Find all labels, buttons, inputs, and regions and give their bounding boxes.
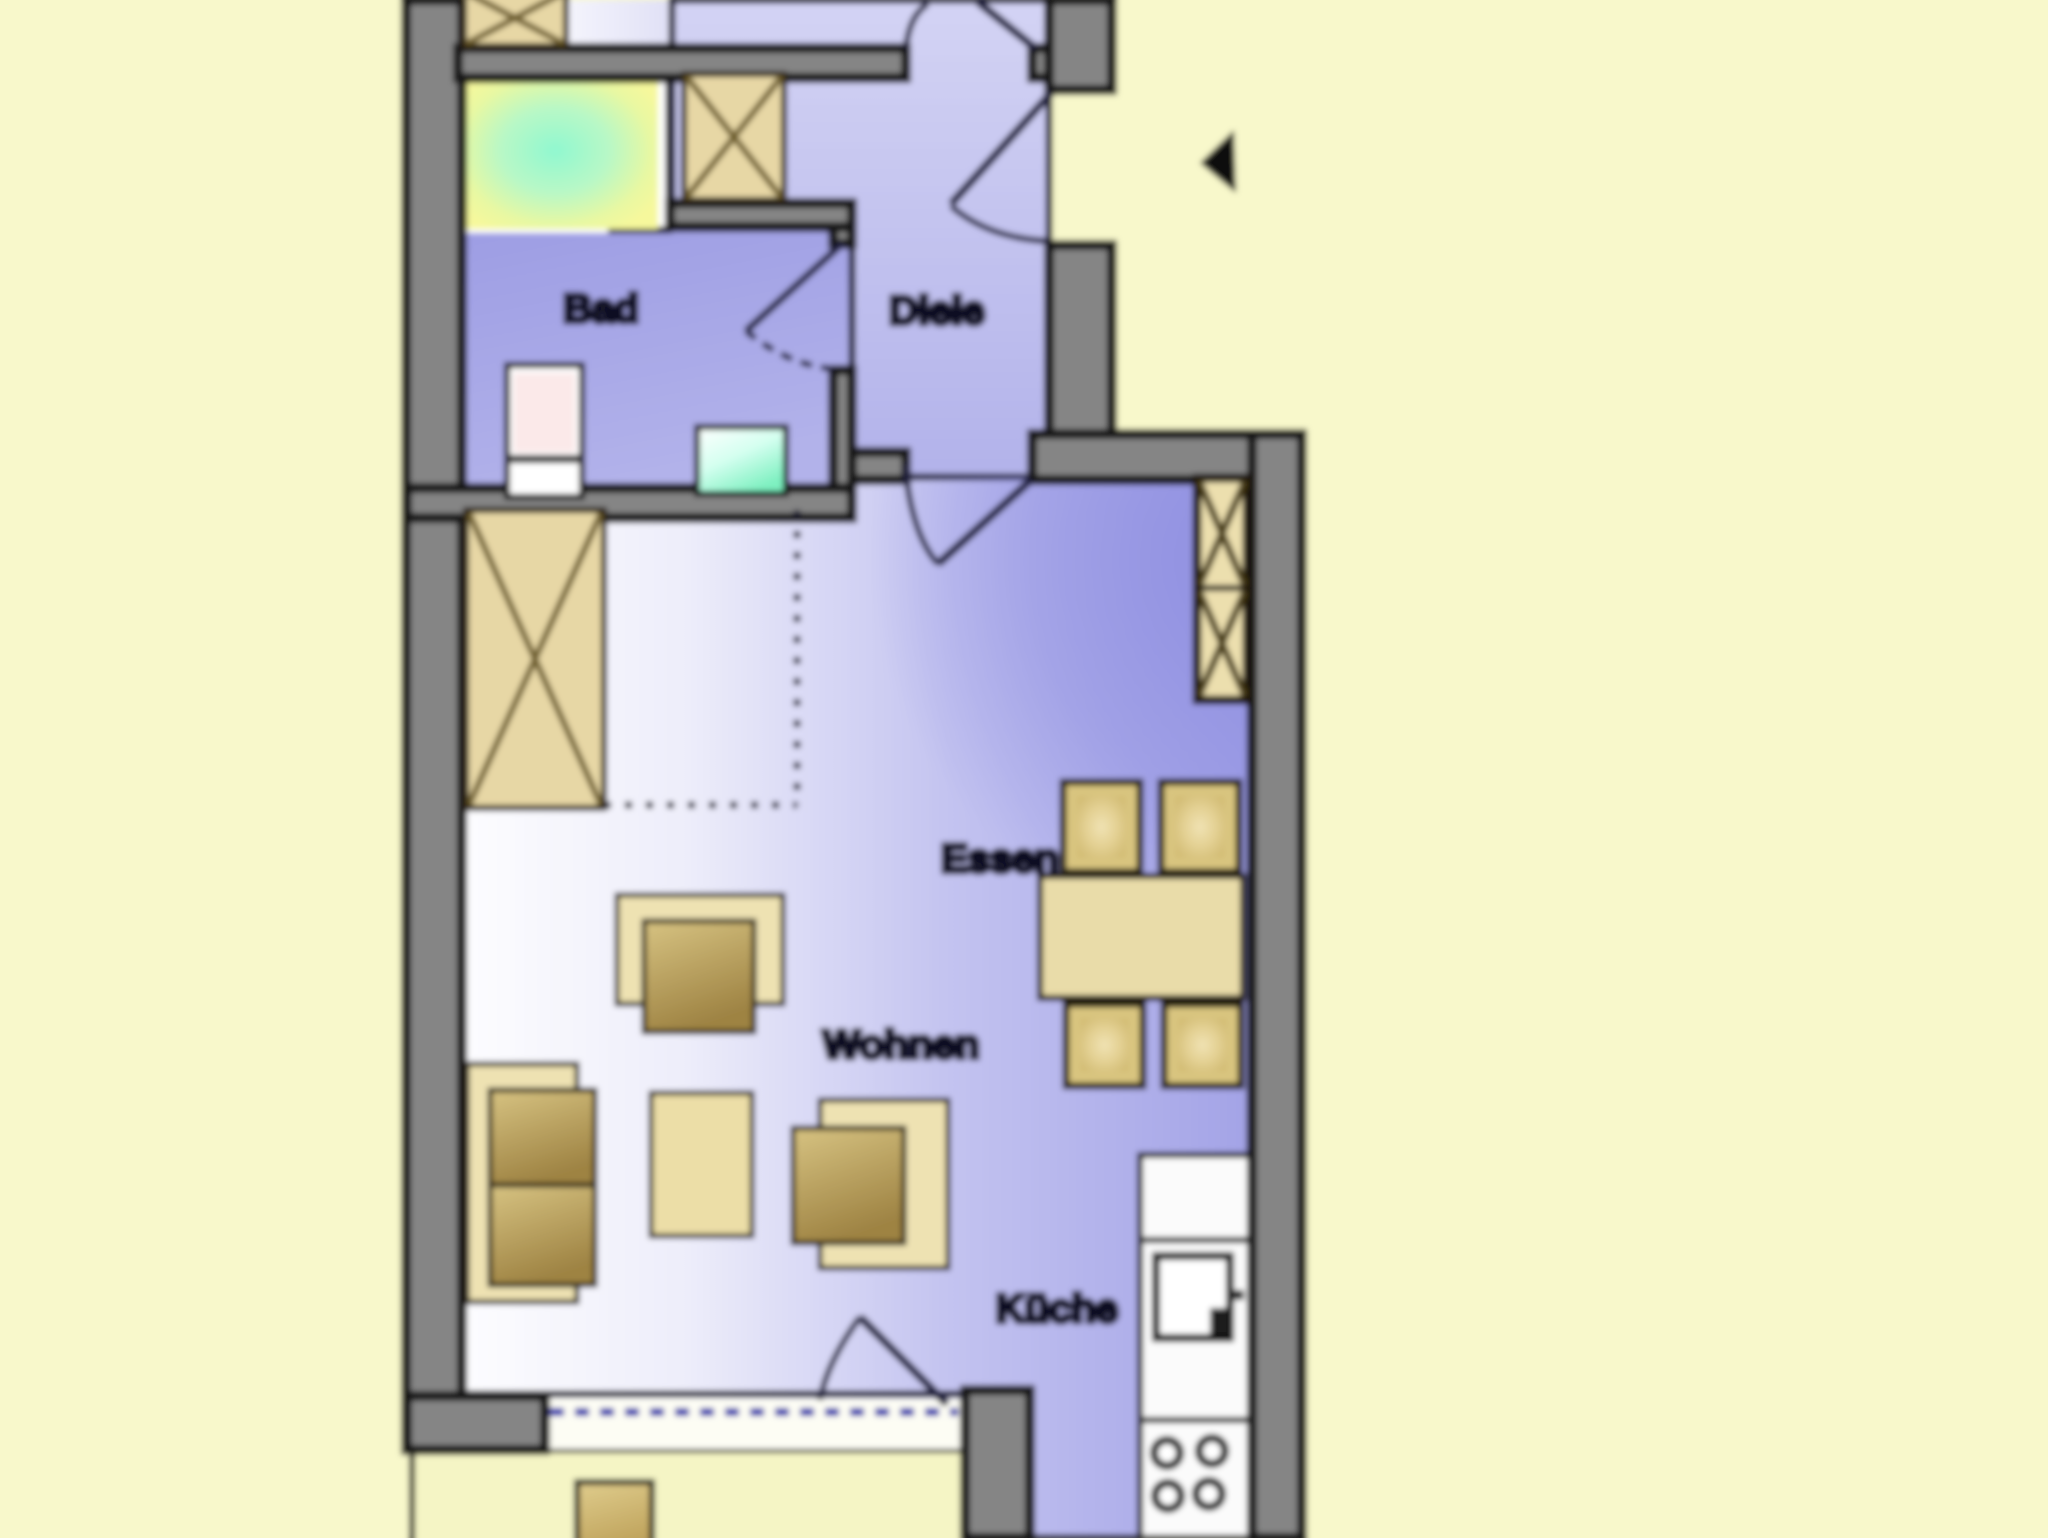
svg-text:Diele: Diele <box>889 289 985 333</box>
svg-text:Essen: Essen <box>941 837 1059 881</box>
svg-text:Bad: Bad <box>563 287 639 331</box>
svg-text:Küche: Küche <box>996 1287 1118 1331</box>
svg-text:Wohnen: Wohnen <box>822 1023 979 1067</box>
